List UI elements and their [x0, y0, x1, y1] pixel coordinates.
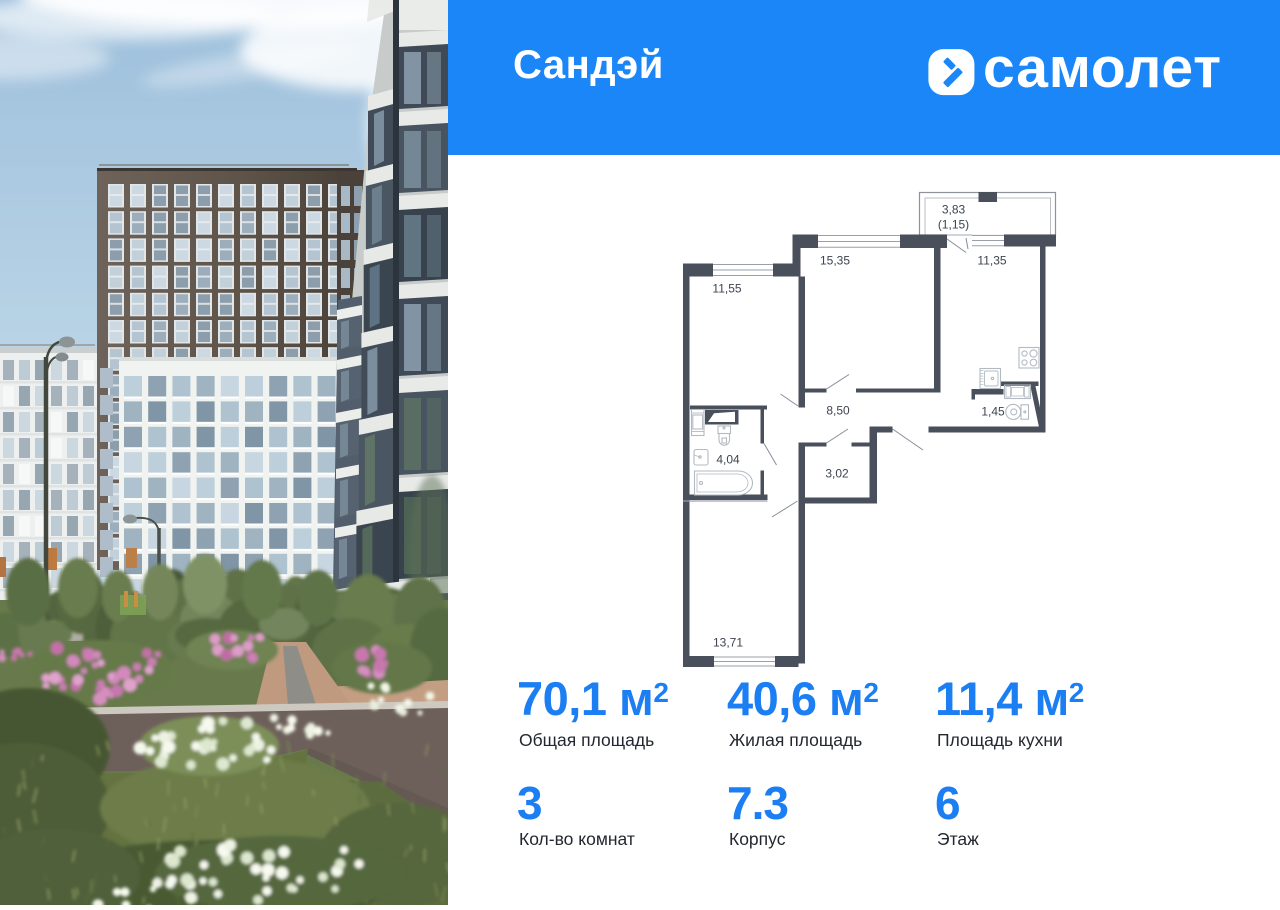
svg-text:15,35: 15,35 [820, 254, 850, 268]
svg-text:11,55: 11,55 [712, 282, 741, 296]
svg-text:3,83: 3,83 [942, 203, 966, 217]
svg-text:3,02: 3,02 [825, 467, 849, 481]
svg-text:13,71: 13,71 [713, 636, 743, 650]
svg-text:4,04: 4,04 [716, 453, 740, 467]
svg-text:11,35: 11,35 [977, 254, 1006, 268]
svg-text:(1,15): (1,15) [938, 218, 969, 232]
svg-text:1,45: 1,45 [981, 405, 1005, 419]
svg-text:8,50: 8,50 [826, 404, 850, 418]
